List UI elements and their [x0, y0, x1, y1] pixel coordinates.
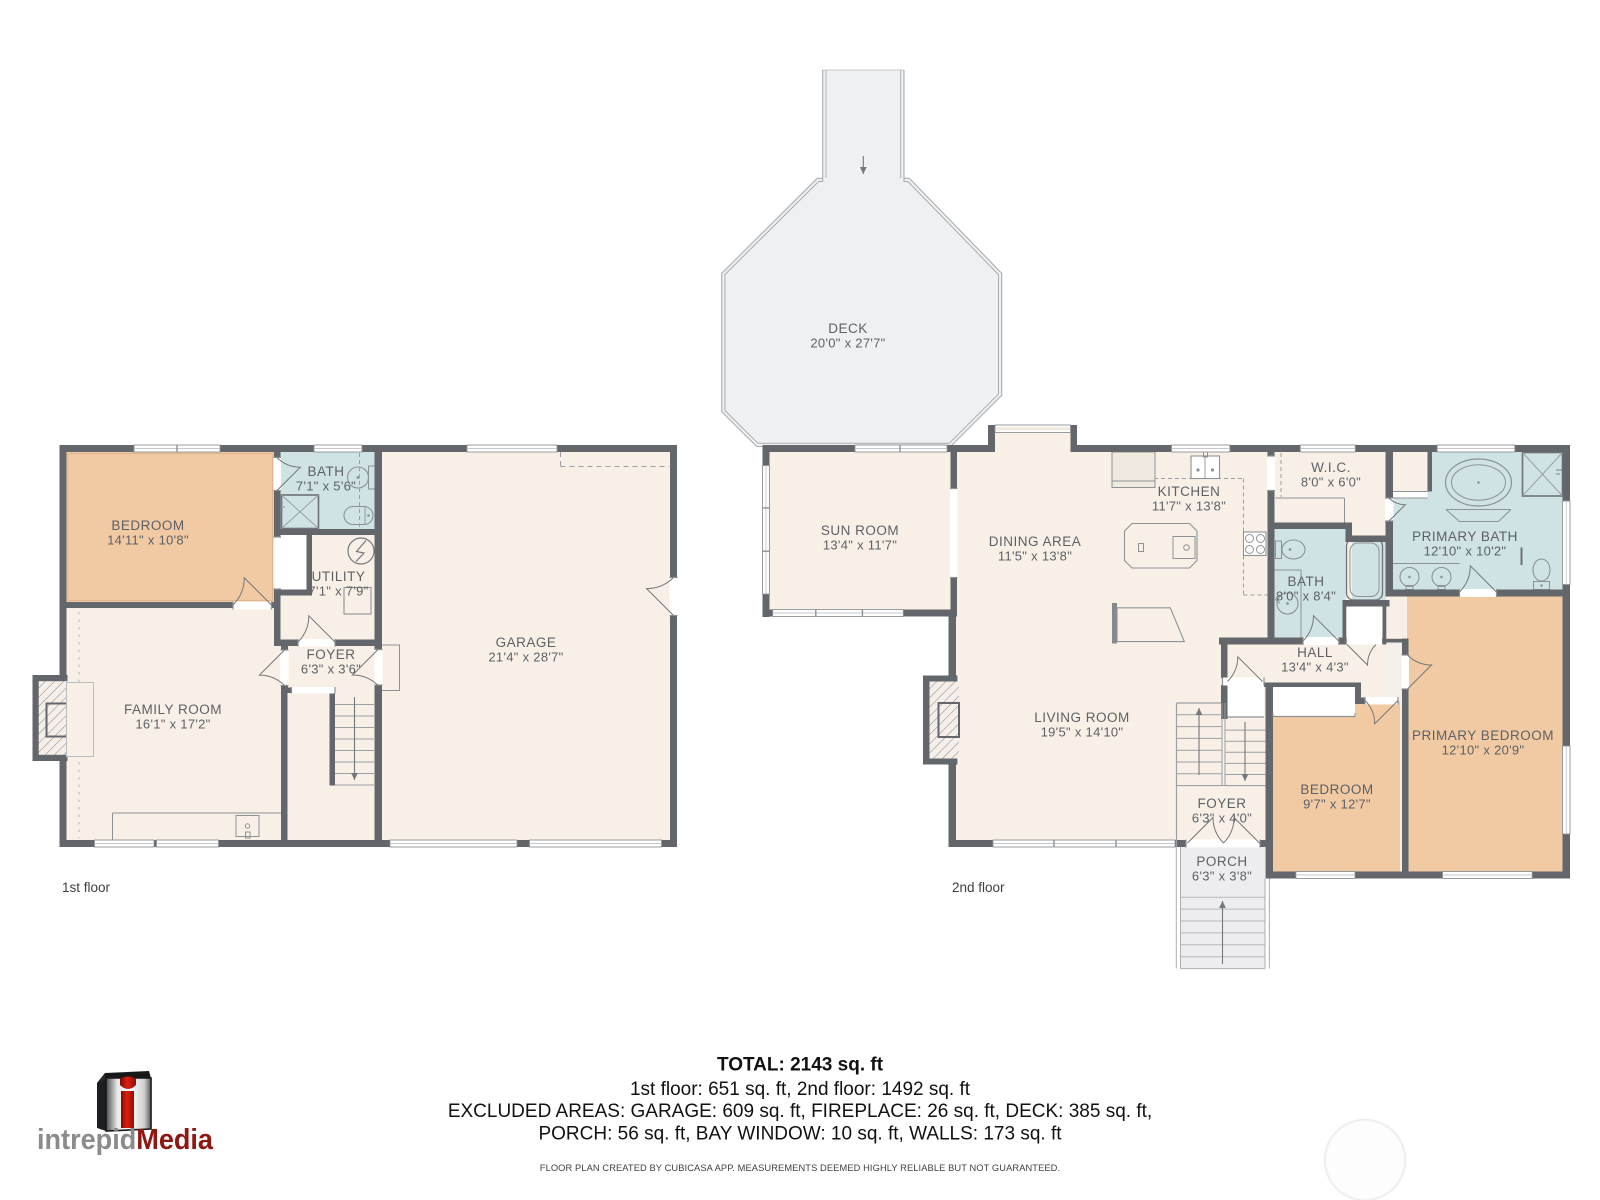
svg-text:LIVING ROOM: LIVING ROOM: [1034, 710, 1130, 725]
svg-text:FOYER: FOYER: [306, 647, 355, 662]
svg-text:PRIMARY BATH: PRIMARY BATH: [1412, 529, 1518, 544]
svg-text:UTILITY: UTILITY: [312, 569, 366, 584]
svg-text:19'5" x 14'10": 19'5" x 14'10": [1041, 725, 1124, 740]
svg-text:TOTAL: 2143 sq. ft: TOTAL: 2143 sq. ft: [717, 1055, 884, 1076]
svg-text:BEDROOM: BEDROOM: [111, 518, 184, 533]
svg-text:DINING AREA: DINING AREA: [989, 534, 1082, 549]
svg-text:6'3" x 3'6": 6'3" x 3'6": [301, 662, 361, 677]
svg-text:KITCHEN: KITCHEN: [1158, 484, 1221, 499]
svg-text:EXCLUDED AREAS: GARAGE: 609 sq: EXCLUDED AREAS: GARAGE: 609 sq. ft, FIRE…: [448, 1101, 1152, 1122]
svg-text:12'10" x 10'2": 12'10" x 10'2": [1424, 544, 1507, 559]
svg-text:intrepidMedia: intrepidMedia: [37, 1124, 214, 1156]
svg-text:13'4" x 11'7": 13'4" x 11'7": [823, 538, 897, 553]
svg-text:6'3" x 4'0": 6'3" x 4'0": [1192, 811, 1252, 826]
svg-text:PORCH: PORCH: [1196, 854, 1247, 869]
svg-text:1st floor: 1st floor: [62, 880, 111, 895]
svg-text:14'11" x 10'8": 14'11" x 10'8": [107, 533, 189, 548]
svg-text:DECK: DECK: [828, 321, 868, 336]
svg-text:BATH: BATH: [307, 464, 344, 479]
svg-text:13'4" x 4'3": 13'4" x 4'3": [1281, 660, 1349, 675]
svg-text:6'3" x 3'8": 6'3" x 3'8": [1192, 869, 1252, 884]
svg-text:9'7" x 12'7": 9'7" x 12'7": [1303, 797, 1371, 812]
svg-text:2nd floor: 2nd floor: [952, 880, 1005, 895]
svg-text:16'1" x 17'2": 16'1" x 17'2": [135, 717, 210, 732]
svg-text:PRIMARY BEDROOM: PRIMARY BEDROOM: [1412, 728, 1554, 743]
svg-text:W.I.C.: W.I.C.: [1311, 460, 1351, 475]
svg-text:8'0" x 6'0": 8'0" x 6'0": [1301, 475, 1361, 490]
svg-text:HALL: HALL: [1297, 645, 1333, 660]
svg-text:8'0" x 8'4": 8'0" x 8'4": [1276, 589, 1336, 604]
svg-text:20'0" x 27'7": 20'0" x 27'7": [810, 336, 885, 351]
svg-text:GARAGE: GARAGE: [496, 635, 557, 650]
svg-text:1st floor: 651 sq. ft, 2nd flo: 1st floor: 651 sq. ft, 2nd floor: 1492 s…: [630, 1079, 971, 1100]
svg-text:11'5" x 13'8": 11'5" x 13'8": [998, 549, 1072, 564]
svg-text:SUN ROOM: SUN ROOM: [821, 523, 899, 538]
svg-text:21'4" x 28'7": 21'4" x 28'7": [488, 650, 563, 665]
svg-text:FOYER: FOYER: [1197, 796, 1246, 811]
svg-text:12'10" x 20'9": 12'10" x 20'9": [1442, 743, 1525, 758]
svg-text:BATH: BATH: [1287, 574, 1324, 589]
svg-text:BEDROOM: BEDROOM: [1300, 782, 1373, 797]
svg-text:PORCH: 56 sq. ft, BAY WINDOW:: PORCH: 56 sq. ft, BAY WINDOW: 10 sq. ft,…: [538, 1124, 1062, 1145]
svg-text:11'7" x 13'8": 11'7" x 13'8": [1152, 499, 1226, 514]
svg-text:FAMILY ROOM: FAMILY ROOM: [124, 702, 222, 717]
svg-text:FLOOR PLAN CREATED BY CUBICASA: FLOOR PLAN CREATED BY CUBICASA APP. MEAS…: [540, 1163, 1060, 1173]
svg-text:7'1" x 7'9": 7'1" x 7'9": [308, 584, 368, 599]
svg-text:7'1" x 5'6": 7'1" x 5'6": [296, 479, 356, 494]
